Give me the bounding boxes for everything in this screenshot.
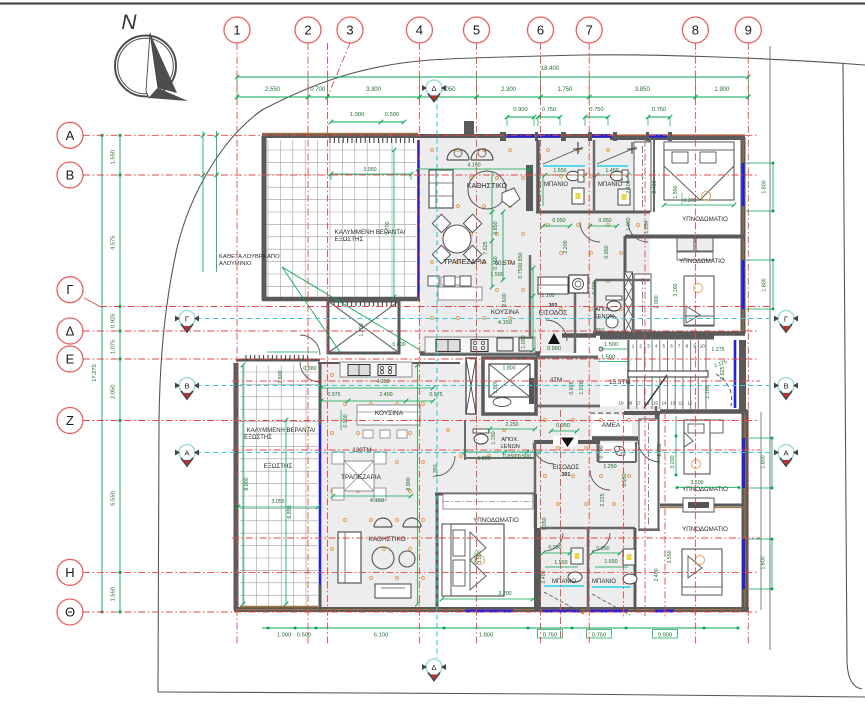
svg-text:ΥΠΝΟΔΩΜΑΤΙΟ: ΥΠΝΟΔΩΜΑΤΙΟ <box>473 517 519 524</box>
svg-text:ΑΜΕΑ: ΑΜΕΑ <box>602 422 621 429</box>
svg-text:2.050: 2.050 <box>111 384 117 399</box>
svg-text:ΑΠΟΧ.: ΑΠΟΧ. <box>595 307 613 313</box>
svg-text:0.950: 0.950 <box>598 218 611 224</box>
svg-text:1.800: 1.800 <box>493 380 499 393</box>
svg-text:0.750: 0.750 <box>543 633 558 639</box>
svg-text:9: 9 <box>693 344 696 349</box>
svg-text:11: 11 <box>687 401 692 406</box>
svg-text:1.800: 1.800 <box>278 370 284 383</box>
svg-text:302: 302 <box>549 303 558 309</box>
svg-text:0.925: 0.925 <box>111 313 117 328</box>
svg-text:0.950: 0.950 <box>556 423 570 429</box>
svg-text:0.880: 0.880 <box>303 366 316 372</box>
svg-text:ΜΠΑΝΙΟ: ΜΠΑΝΙΟ <box>598 182 622 188</box>
svg-text:ΚΑΘΕΤΑ ΛΟΥΒΡΑ ΑΠΟ: ΚΑΘΕΤΑ ΛΟΥΒΡΑ ΑΠΟ <box>219 254 280 260</box>
svg-text:17.275: 17.275 <box>92 364 98 382</box>
svg-text:0.750: 0.750 <box>542 107 557 113</box>
svg-text:ΤΡΑΠΕΖΑΡΙΑ: ΤΡΑΠΕΖΑΡΙΑ <box>443 259 486 266</box>
svg-text:1.550: 1.550 <box>111 587 117 602</box>
svg-text:1.800: 1.800 <box>762 180 768 193</box>
svg-text:0.850: 0.850 <box>493 221 499 234</box>
svg-text:ΞΕΝΩΝ: ΞΕΝΩΝ <box>594 314 614 320</box>
svg-text:1.500: 1.500 <box>604 342 619 348</box>
svg-text:2.400: 2.400 <box>654 568 660 581</box>
svg-text:18.400: 18.400 <box>541 66 560 72</box>
svg-text:1.050: 1.050 <box>542 517 548 530</box>
svg-text:Β: Β <box>184 382 189 391</box>
svg-text:0.750: 0.750 <box>652 107 667 113</box>
svg-text:ΕΞΩΣΤΗΣ: ΕΞΩΣΤΗΣ <box>335 236 364 243</box>
svg-text:4.150: 4.150 <box>467 163 480 169</box>
svg-text:ΚΑΘΗΣΤΙΚΟ: ΚΑΘΗΣΤΙΚΟ <box>368 536 405 543</box>
svg-text:0.700: 0.700 <box>592 281 598 294</box>
svg-text:7: 7 <box>678 344 681 349</box>
svg-text:Β: Β <box>66 168 75 183</box>
svg-text:8.900: 8.900 <box>406 477 412 490</box>
svg-text:0.500: 0.500 <box>297 633 312 639</box>
svg-text:0.950: 0.950 <box>604 245 610 258</box>
svg-text:ΤΡΑΠΕΖΑΡΙΑ: ΤΡΑΠΕΖΑΡΙΑ <box>341 474 382 481</box>
svg-text:1.550: 1.550 <box>554 560 567 566</box>
svg-text:7: 7 <box>586 23 593 38</box>
svg-text:1.650: 1.650 <box>604 559 617 565</box>
svg-text:2.550: 2.550 <box>265 87 281 93</box>
svg-text:17: 17 <box>636 401 642 406</box>
svg-text:1.900: 1.900 <box>714 87 730 93</box>
svg-text:Α: Α <box>783 449 788 458</box>
svg-text:3.200: 3.200 <box>670 455 676 468</box>
svg-text:Δ: Δ <box>431 84 436 93</box>
svg-text:2.625: 2.625 <box>720 366 726 379</box>
svg-text:3.160: 3.160 <box>673 283 679 296</box>
svg-text:1.750: 1.750 <box>557 87 573 93</box>
svg-text:2.200: 2.200 <box>563 240 569 253</box>
svg-text:0.950: 0.950 <box>596 546 609 552</box>
svg-text:3.055: 3.055 <box>271 499 284 505</box>
svg-text:301: 301 <box>562 472 571 478</box>
svg-text:0.500: 0.500 <box>385 112 400 118</box>
svg-text:6: 6 <box>537 23 544 38</box>
svg-text:Η: Η <box>65 565 74 580</box>
svg-text:1.100: 1.100 <box>705 385 711 398</box>
svg-text:1.350: 1.350 <box>433 464 439 477</box>
svg-text:8: 8 <box>692 23 699 38</box>
svg-text:0.950: 0.950 <box>622 473 628 486</box>
svg-text:2.400: 2.400 <box>379 392 392 398</box>
svg-text:3: 3 <box>346 23 353 38</box>
svg-text:19: 19 <box>618 401 624 406</box>
svg-text:6.100: 6.100 <box>374 633 389 639</box>
svg-text:N: N <box>121 11 137 34</box>
svg-text:ΚΑΛΥΜΜΕΝΗ ΒΕΡΑΝΤΑ/: ΚΑΛΥΜΜΕΝΗ ΒΕΡΑΝΤΑ/ <box>247 428 316 434</box>
svg-text:7.625: 7.625 <box>483 241 489 254</box>
svg-text:0.975: 0.975 <box>429 392 442 398</box>
svg-text:3.050: 3.050 <box>363 167 376 173</box>
svg-text:ΑΠΟΧ.: ΑΠΟΧ. <box>501 437 519 443</box>
svg-text:3.200: 3.200 <box>690 480 703 486</box>
svg-text:2.400: 2.400 <box>652 180 658 193</box>
svg-text:1.800: 1.800 <box>761 455 767 468</box>
svg-text:15.5TM: 15.5TM <box>609 379 631 386</box>
svg-text:ΜΠΑΝΙΟ: ΜΠΑΝΙΟ <box>544 182 568 188</box>
svg-text:0.950: 0.950 <box>547 346 561 352</box>
svg-text:0.975: 0.975 <box>327 392 340 398</box>
svg-text:0.900: 0.900 <box>658 633 673 639</box>
svg-text:2: 2 <box>304 23 311 38</box>
svg-text:ΚΑΛΥΜΜΕΝΗ ΒΕΡΑΝΤΑ/: ΚΑΛΥΜΜΕΝΗ ΒΕΡΑΝΤΑ/ <box>335 229 406 236</box>
svg-text:2.225: 2.225 <box>600 493 606 506</box>
svg-text:3: 3 <box>647 344 650 349</box>
svg-text:ΕΙΣΟΔΟΣ: ΕΙΣΟΔΟΣ <box>553 465 579 471</box>
svg-text:0.850: 0.850 <box>518 252 524 265</box>
svg-text:Β: Β <box>783 382 788 391</box>
svg-text:Ε: Ε <box>66 352 75 367</box>
svg-text:ΚΑΘΗΣΤΙΚΟ: ΚΑΘΗΣΤΙΚΟ <box>467 183 508 190</box>
svg-text:1.800: 1.800 <box>503 366 516 372</box>
svg-text:3.550: 3.550 <box>667 550 673 563</box>
svg-text:1.026: 1.026 <box>579 381 585 394</box>
svg-text:1.550: 1.550 <box>673 185 679 198</box>
svg-text:13: 13 <box>670 401 676 406</box>
svg-text:Γ: Γ <box>784 315 788 324</box>
svg-text:ΚΟΥΣΙΝΑ: ΚΟΥΣΙΝΑ <box>375 410 404 417</box>
svg-text:ΞΕΝΩΝ: ΞΕΝΩΝ <box>500 444 520 450</box>
svg-text:Θ: Θ <box>65 605 75 620</box>
svg-text:4: 4 <box>416 23 423 38</box>
svg-text:5.550: 5.550 <box>111 491 117 506</box>
svg-text:ΕΞΩΣΤΗΣ: ΕΞΩΣΤΗΣ <box>264 463 293 470</box>
svg-text:1: 1 <box>632 344 635 349</box>
svg-text:14: 14 <box>661 401 667 406</box>
svg-text:0.950: 0.950 <box>552 218 565 224</box>
svg-text:0.850 0.500: 0.850 0.500 <box>503 454 531 460</box>
svg-text:ΑΛΟΥΜΙΝΙΟ: ΑΛΟΥΜΙΝΙΟ <box>219 261 252 267</box>
svg-text:9: 9 <box>745 23 752 38</box>
svg-text:ΥΠΝΟΔΩΜΑΤΙΟ: ΥΠΝΟΔΩΜΑΤΙΟ <box>682 486 728 493</box>
svg-text:Α: Α <box>66 128 75 143</box>
svg-text:1.050: 1.050 <box>521 335 527 348</box>
svg-text:2.600: 2.600 <box>502 293 508 306</box>
svg-text:0.926: 0.926 <box>569 381 575 394</box>
svg-text:5: 5 <box>473 23 480 38</box>
svg-text:ΕΞΩΣΤΗΣ: ΕΞΩΣΤΗΣ <box>244 435 272 441</box>
svg-text:1.200: 1.200 <box>359 323 365 336</box>
svg-text:3.200: 3.200 <box>498 591 511 597</box>
svg-text:2: 2 <box>639 344 642 349</box>
svg-text:1.000: 1.000 <box>350 112 365 118</box>
svg-text:4.575: 4.575 <box>111 235 117 250</box>
svg-text:ΥΠΝΟΔΩΜΑΤΙΟ: ΥΠΝΟΔΩΜΑΤΙΟ <box>682 526 728 533</box>
svg-text:3.300: 3.300 <box>683 198 696 204</box>
svg-text:1.000: 1.000 <box>277 633 292 639</box>
svg-text:3.850: 3.850 <box>635 87 651 93</box>
svg-text:0.750: 0.750 <box>589 107 604 113</box>
svg-text:0.750: 0.750 <box>592 633 607 639</box>
svg-text:8: 8 <box>686 344 689 349</box>
svg-text:1.150: 1.150 <box>491 431 497 444</box>
svg-text:18: 18 <box>627 401 633 406</box>
svg-text:Α: Α <box>184 449 189 458</box>
svg-text:8.900: 8.900 <box>244 477 250 490</box>
svg-text:0.950: 0.950 <box>548 545 561 551</box>
svg-text:1.500: 1.500 <box>601 355 616 361</box>
svg-text:5.700: 5.700 <box>385 221 391 234</box>
svg-text:1.450: 1.450 <box>605 168 618 174</box>
svg-text:0.750: 0.750 <box>493 256 499 269</box>
svg-text:5: 5 <box>663 344 666 349</box>
svg-text:0.800: 0.800 <box>392 342 405 348</box>
svg-text:1.800: 1.800 <box>479 633 494 639</box>
svg-text:1.275: 1.275 <box>711 347 724 353</box>
svg-text:15: 15 <box>653 401 659 406</box>
svg-text:Ζ: Ζ <box>66 413 74 428</box>
svg-text:Γ: Γ <box>66 282 73 297</box>
svg-text:1: 1 <box>233 23 240 38</box>
svg-text:4: 4 <box>655 344 658 349</box>
svg-text:ΥΠΝΟΔΩΜΑΤΙΟ: ΥΠΝΟΔΩΜΑΤΙΟ <box>682 216 728 223</box>
svg-text:1.100: 1.100 <box>541 293 554 299</box>
svg-text:ΥΠΝΟΔΩΜΑΤΙΟ: ΥΠΝΟΔΩΜΑΤΙΟ <box>679 258 725 265</box>
svg-text:1.650: 1.650 <box>553 168 566 174</box>
svg-text:1.800: 1.800 <box>762 278 768 291</box>
svg-text:3.300: 3.300 <box>366 87 382 93</box>
svg-text:1.250: 1.250 <box>603 464 616 470</box>
svg-text:1.250: 1.250 <box>477 456 490 462</box>
svg-text:3.550: 3.550 <box>477 550 483 563</box>
svg-text:ΜΠΑΝΙΟ: ΜΠΑΝΙΟ <box>592 579 616 585</box>
svg-text:2.400: 2.400 <box>626 180 632 193</box>
svg-text:1.050: 1.050 <box>626 217 632 230</box>
svg-text:6: 6 <box>670 344 673 349</box>
svg-text:Γ: Γ <box>185 315 189 324</box>
svg-text:4.150: 4.150 <box>370 498 385 504</box>
svg-text:12: 12 <box>679 401 685 406</box>
svg-text:Δ: Δ <box>431 663 436 672</box>
svg-text:1.800: 1.800 <box>761 556 767 569</box>
svg-text:ΕΙΣΟΔΟΣ: ΕΙΣΟΔΟΣ <box>539 310 567 317</box>
svg-text:2.250: 2.250 <box>505 422 518 428</box>
svg-text:0.700: 0.700 <box>310 87 326 93</box>
svg-text:2.300: 2.300 <box>501 87 517 93</box>
svg-text:0.900: 0.900 <box>513 107 528 113</box>
svg-text:4.350: 4.350 <box>376 379 389 385</box>
svg-text:0.900: 0.900 <box>343 414 349 427</box>
svg-text:ΚΟΥΣΙΝΑ: ΚΟΥΣΙΝΑ <box>491 309 520 316</box>
svg-text:1.550: 1.550 <box>111 150 117 165</box>
svg-text:4.150: 4.150 <box>498 320 513 326</box>
svg-text:0.750: 0.750 <box>518 265 524 278</box>
svg-text:Δ: Δ <box>66 324 75 339</box>
svg-text:4ΤΜ: 4ΤΜ <box>550 377 562 384</box>
svg-text:10: 10 <box>700 344 706 349</box>
svg-text:1.075: 1.075 <box>111 340 117 355</box>
svg-text:ΜΠΑΝΙΟ: ΜΠΑΝΙΟ <box>552 579 576 585</box>
